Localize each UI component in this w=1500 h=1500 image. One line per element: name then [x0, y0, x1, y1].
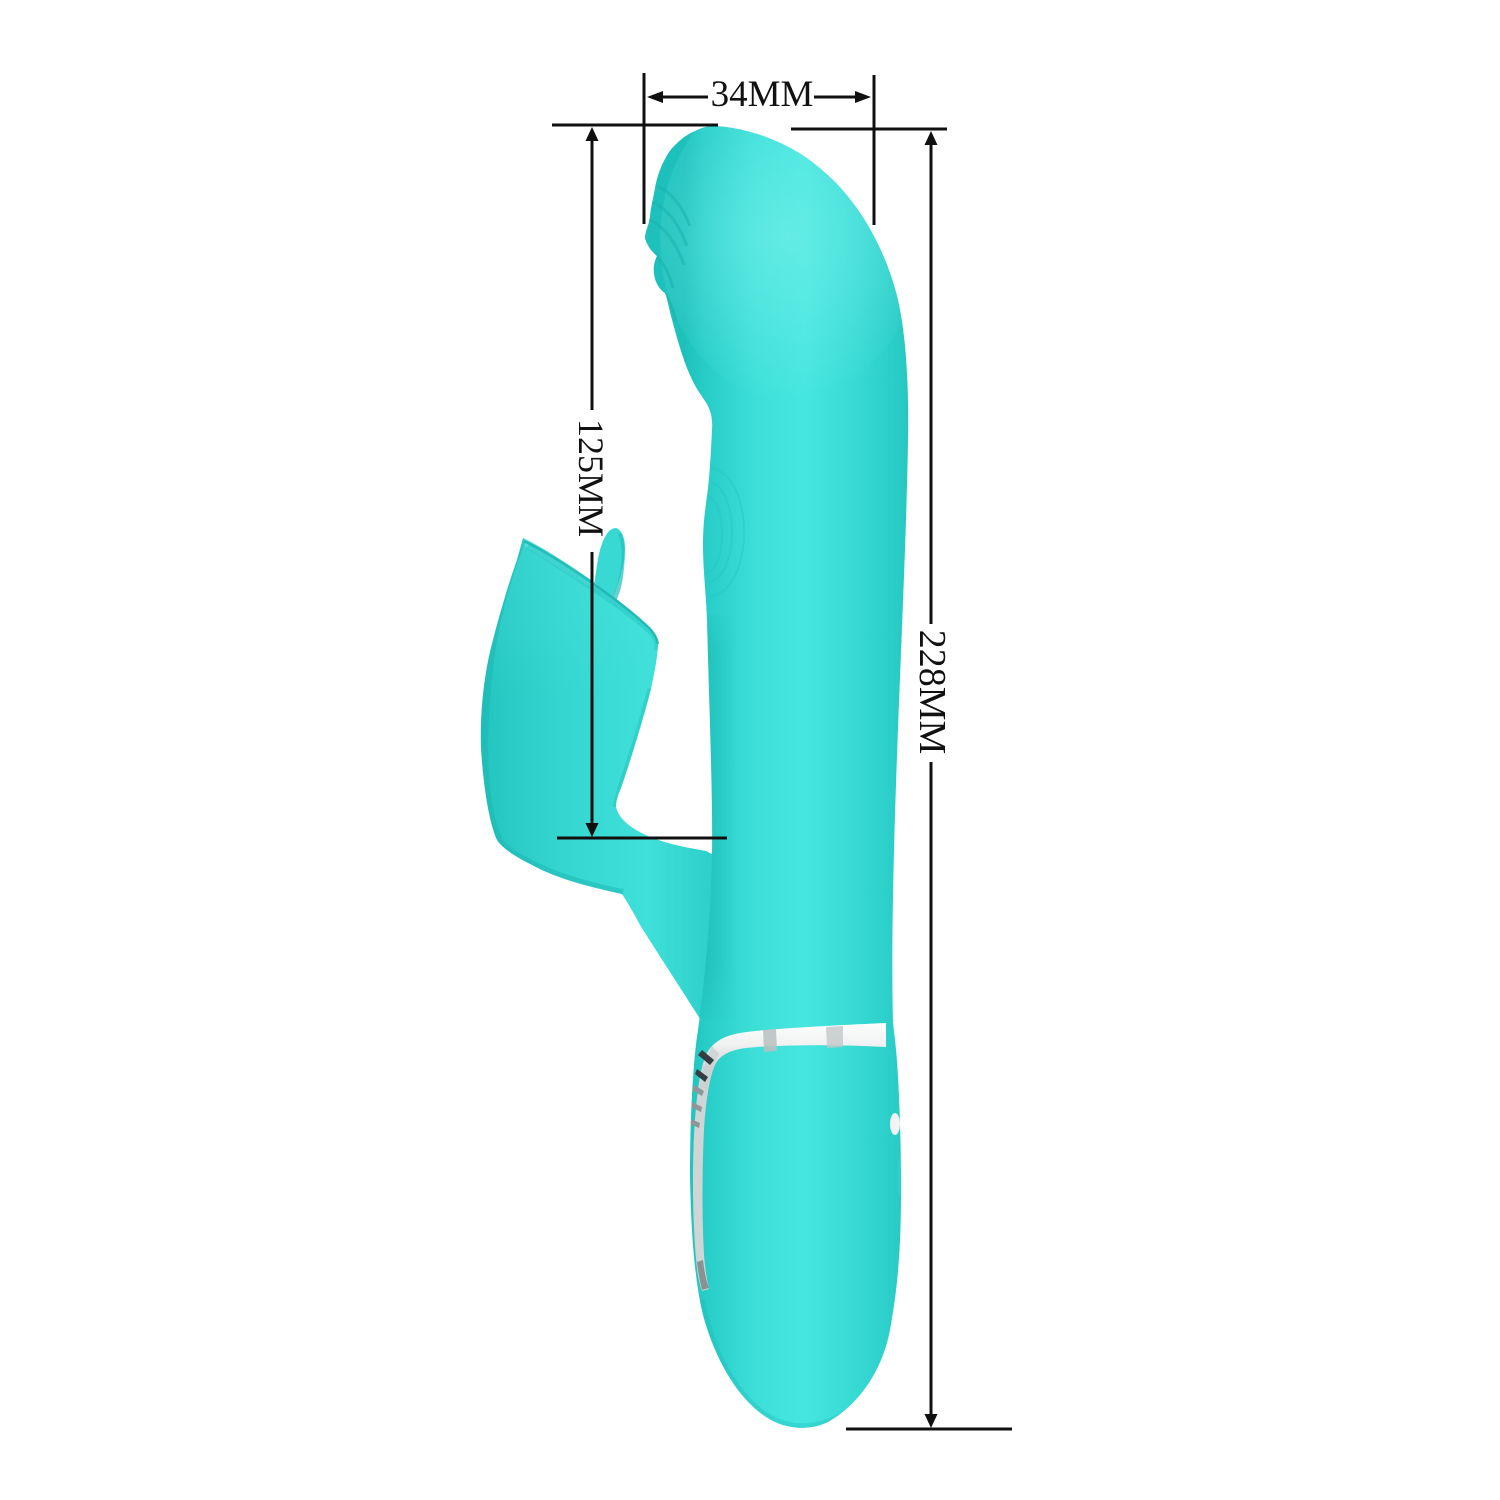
svg-text:125MM: 125MM	[571, 419, 611, 537]
svg-text:34MM: 34MM	[711, 74, 814, 115]
svg-text:228MM: 228MM	[911, 630, 953, 755]
